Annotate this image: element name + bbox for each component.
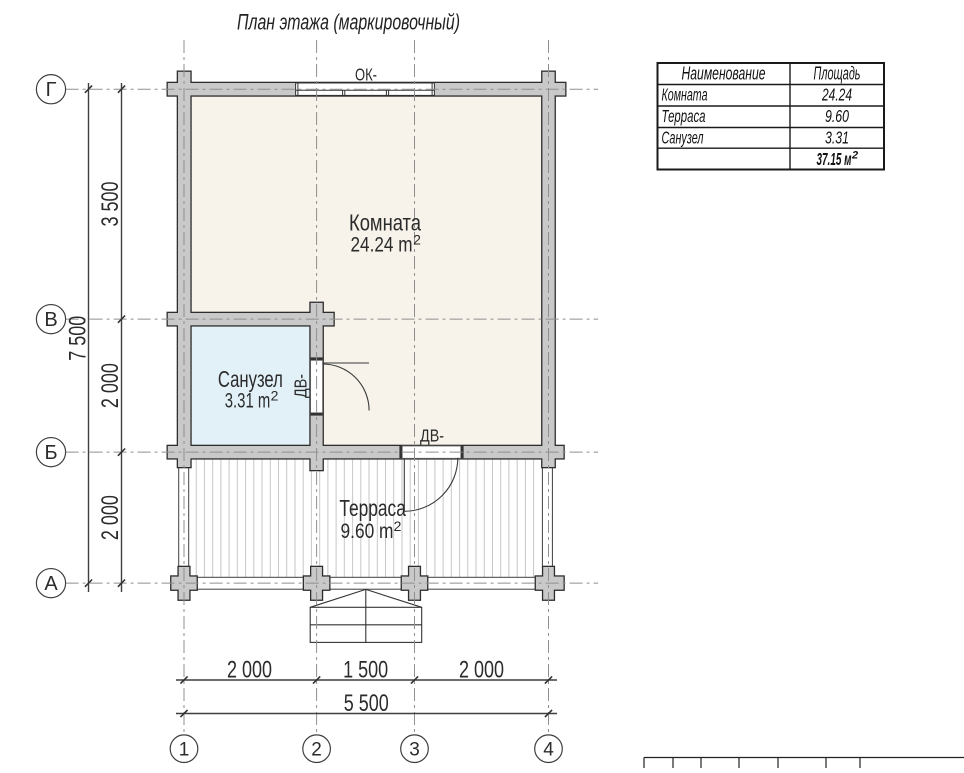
svg-text:4: 4	[543, 739, 554, 760]
svg-text:2 000: 2 000	[97, 495, 124, 540]
svg-text:2: 2	[271, 388, 279, 404]
svg-text:3: 3	[409, 739, 420, 760]
svg-text:ОК-: ОК-	[355, 64, 377, 84]
svg-text:37.15 м: 37.15 м	[817, 149, 852, 169]
svg-text:Комната: Комната	[662, 85, 708, 105]
svg-text:2 000: 2 000	[97, 363, 124, 408]
svg-text:9.60: 9.60	[825, 106, 849, 126]
svg-text:2 000: 2 000	[459, 657, 504, 684]
svg-text:3.31: 3.31	[825, 128, 849, 148]
svg-text:Б: Б	[44, 442, 57, 464]
svg-text:3 500: 3 500	[97, 182, 124, 227]
svg-text:2 000: 2 000	[227, 657, 272, 684]
svg-text:9.60 m: 9.60 m	[341, 520, 394, 543]
svg-text:1: 1	[179, 739, 190, 760]
svg-text:Наименование: Наименование	[682, 63, 766, 84]
svg-text:2: 2	[311, 739, 322, 760]
svg-text:Площадь: Площадь	[814, 63, 861, 84]
svg-text:2: 2	[413, 232, 421, 248]
svg-text:Терраса: Терраса	[662, 106, 706, 126]
svg-text:24.24: 24.24	[821, 85, 852, 105]
svg-text:ДВ-: ДВ-	[291, 374, 311, 398]
svg-text:7 500: 7 500	[65, 316, 92, 361]
svg-text:1 500: 1 500	[343, 657, 388, 684]
svg-text:В: В	[44, 309, 57, 331]
svg-text:Комната: Комната	[349, 210, 421, 236]
svg-text:А: А	[44, 573, 58, 595]
svg-text:Г: Г	[46, 79, 57, 101]
svg-text:2: 2	[851, 150, 858, 162]
svg-text:5 500: 5 500	[344, 690, 389, 717]
svg-text:План этажа (маркировочный): План этажа (маркировочный)	[237, 10, 460, 35]
svg-text:24.24 m: 24.24 m	[351, 234, 413, 257]
svg-text:Санузел: Санузел	[662, 128, 704, 148]
svg-text:2: 2	[394, 518, 402, 534]
svg-text:ДВ-: ДВ-	[420, 425, 444, 445]
svg-text:3.31 m: 3.31 m	[225, 389, 271, 412]
